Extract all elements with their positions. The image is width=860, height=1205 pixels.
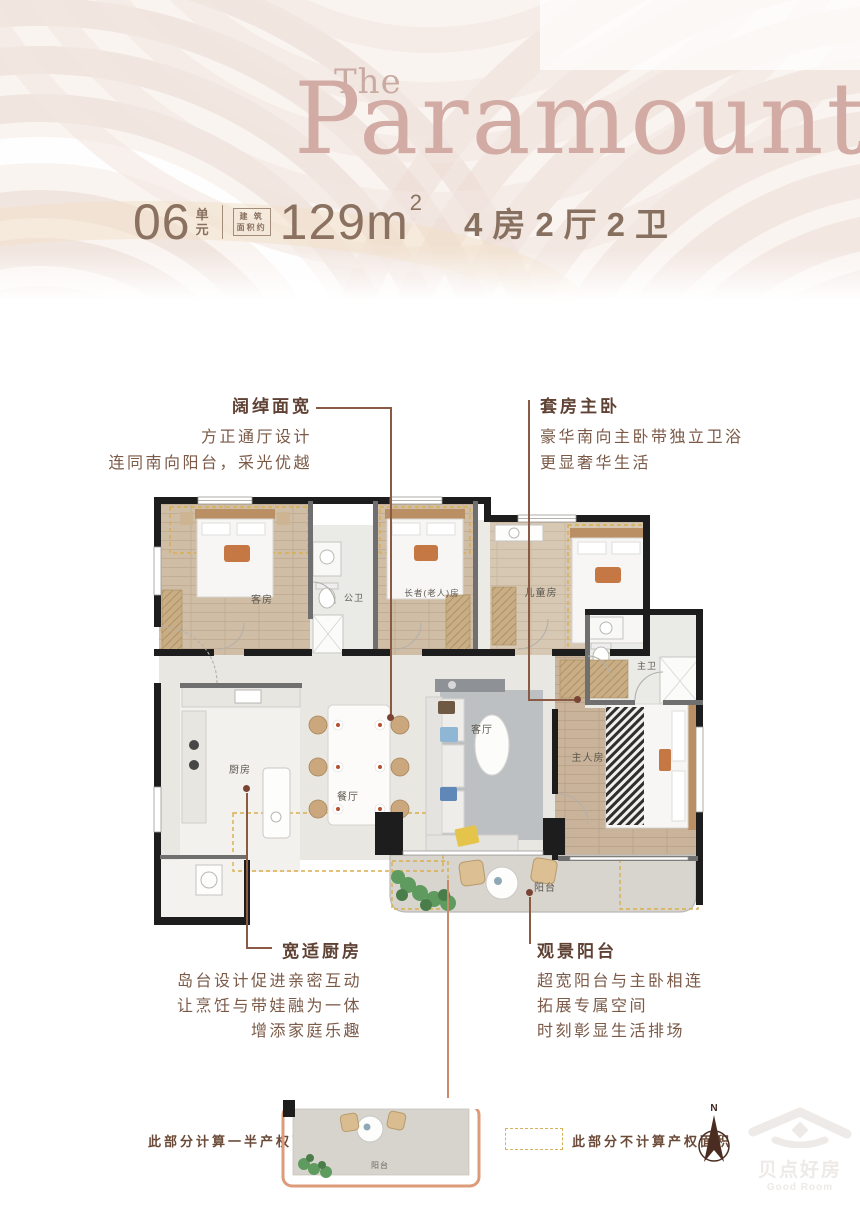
annotation-title-balcony: 观景阳台: [537, 939, 704, 964]
leader-line-kitchen-v: [246, 793, 248, 948]
leader-line-balcony-v: [529, 897, 531, 944]
annotation-line: 连同南向阳台，采光优越: [58, 451, 312, 477]
room-label-public-bath: 公卫: [344, 593, 364, 603]
leader-line-master-v: [528, 400, 530, 700]
leader-line-master-h: [528, 699, 576, 701]
unit-suffix-top: 单: [196, 207, 210, 222]
room-label-master-bath: 主卫: [637, 660, 657, 671]
annotation-line: 增添家庭乐趣: [110, 1019, 362, 1044]
leader-dot-balcony: [526, 889, 533, 896]
leader-line-wide-frontage-v: [390, 407, 392, 718]
brand-name: Paramount: [294, 66, 860, 175]
compass-north-label: N: [710, 1103, 717, 1114]
room-label-balcony: 阳台: [534, 881, 556, 894]
annotation-line: 更显奢华生活: [540, 451, 744, 477]
annotation-title-wide-frontage: 阔绰面宽: [58, 394, 312, 420]
annotation-line: 拓展专属空间: [537, 994, 704, 1019]
leader-dot-kitchen: [243, 785, 250, 792]
leader-line-wide-frontage-h: [316, 407, 392, 409]
annotation-master-suite: 套房主卧 豪华南向主卧带独立卫浴 更显奢华生活: [540, 394, 744, 477]
layout-text: 4房2厅2卫: [464, 198, 678, 246]
room-label-elder: 长者(老人)房: [404, 588, 459, 598]
area-superscript: 2: [410, 190, 423, 216]
unit-suffix: 单 元: [196, 207, 210, 237]
annotation-line: 超宽阳台与主卧相连: [537, 969, 704, 994]
annotation-title-master-suite: 套房主卧: [540, 394, 744, 420]
room-label-living: 客厅: [471, 723, 493, 736]
area-note-line2: 面积约: [237, 223, 267, 232]
unit-number: 06: [133, 193, 191, 251]
room-label-master: 主人房: [572, 751, 605, 764]
annotation-line: 让烹饪与带娃融为一体: [110, 994, 362, 1019]
headline-divider: [222, 205, 223, 239]
watermark-en: Good Room: [740, 1182, 860, 1193]
annotation-line: 豪华南向主卧带独立卫浴: [540, 425, 744, 451]
watermark-cn: 贝点好房: [740, 1155, 860, 1182]
annotation-balcony: 观景阳台 超宽阳台与主卧相连 拓展专属空间 时刻彰显生活排场: [537, 939, 704, 1044]
annotation-title-kitchen: 宽适厨房: [110, 939, 362, 964]
annotation-kitchen: 宽适厨房 岛台设计促进亲密互动 让烹饪与带娃融为一体 增添家庭乐趣: [110, 939, 362, 1044]
leader-dot-dining: [387, 714, 394, 721]
mini-balcony-diagram: 阳台: [280, 1098, 486, 1194]
annotation-line: 时刻彰显生活排场: [537, 1019, 704, 1044]
compass-needle-icon: [704, 1115, 724, 1162]
area-note-box: 建 筑 面积约: [233, 208, 271, 236]
unit-suffix-bottom: 元: [196, 222, 210, 237]
room-label-kitchen: 厨房: [229, 763, 251, 776]
leader-line-kitchen-h: [246, 947, 272, 949]
area-value: 129m: [280, 193, 409, 251]
watermark: 贝点好房 Good Room: [740, 1106, 860, 1193]
room-label-dining: 餐厅: [337, 790, 359, 803]
poster-page: The Paramount 06 单 元 建 筑 面积约 129m 2 4房2厅…: [0, 0, 860, 1205]
compass: N: [692, 1100, 736, 1172]
excluded-area-swatch: [505, 1128, 563, 1150]
unit-headline: 06 单 元 建 筑 面积约 129m 2 4房2厅2卫: [133, 194, 678, 250]
area-note-line1: 建 筑: [240, 212, 264, 221]
annotation-wide-frontage: 阔绰面宽 方正通厅设计 连同南向阳台，采光优越: [58, 394, 312, 477]
mini-balcony-label: 阳台: [371, 1160, 389, 1170]
room-label-guest: 客房: [251, 593, 273, 606]
leader-dot-master: [574, 696, 581, 703]
floorplan: 客房 公卫 长者(老人)房 儿童房 主卫 主人房 厨房 餐厅 客厅 阳台: [140, 487, 715, 932]
annotation-line: 方正通厅设计: [58, 425, 312, 451]
annotation-line: 岛台设计促进亲密互动: [110, 969, 362, 994]
connector-line-mini-balcony: [447, 880, 449, 1112]
watermark-house-icon: [745, 1106, 855, 1148]
